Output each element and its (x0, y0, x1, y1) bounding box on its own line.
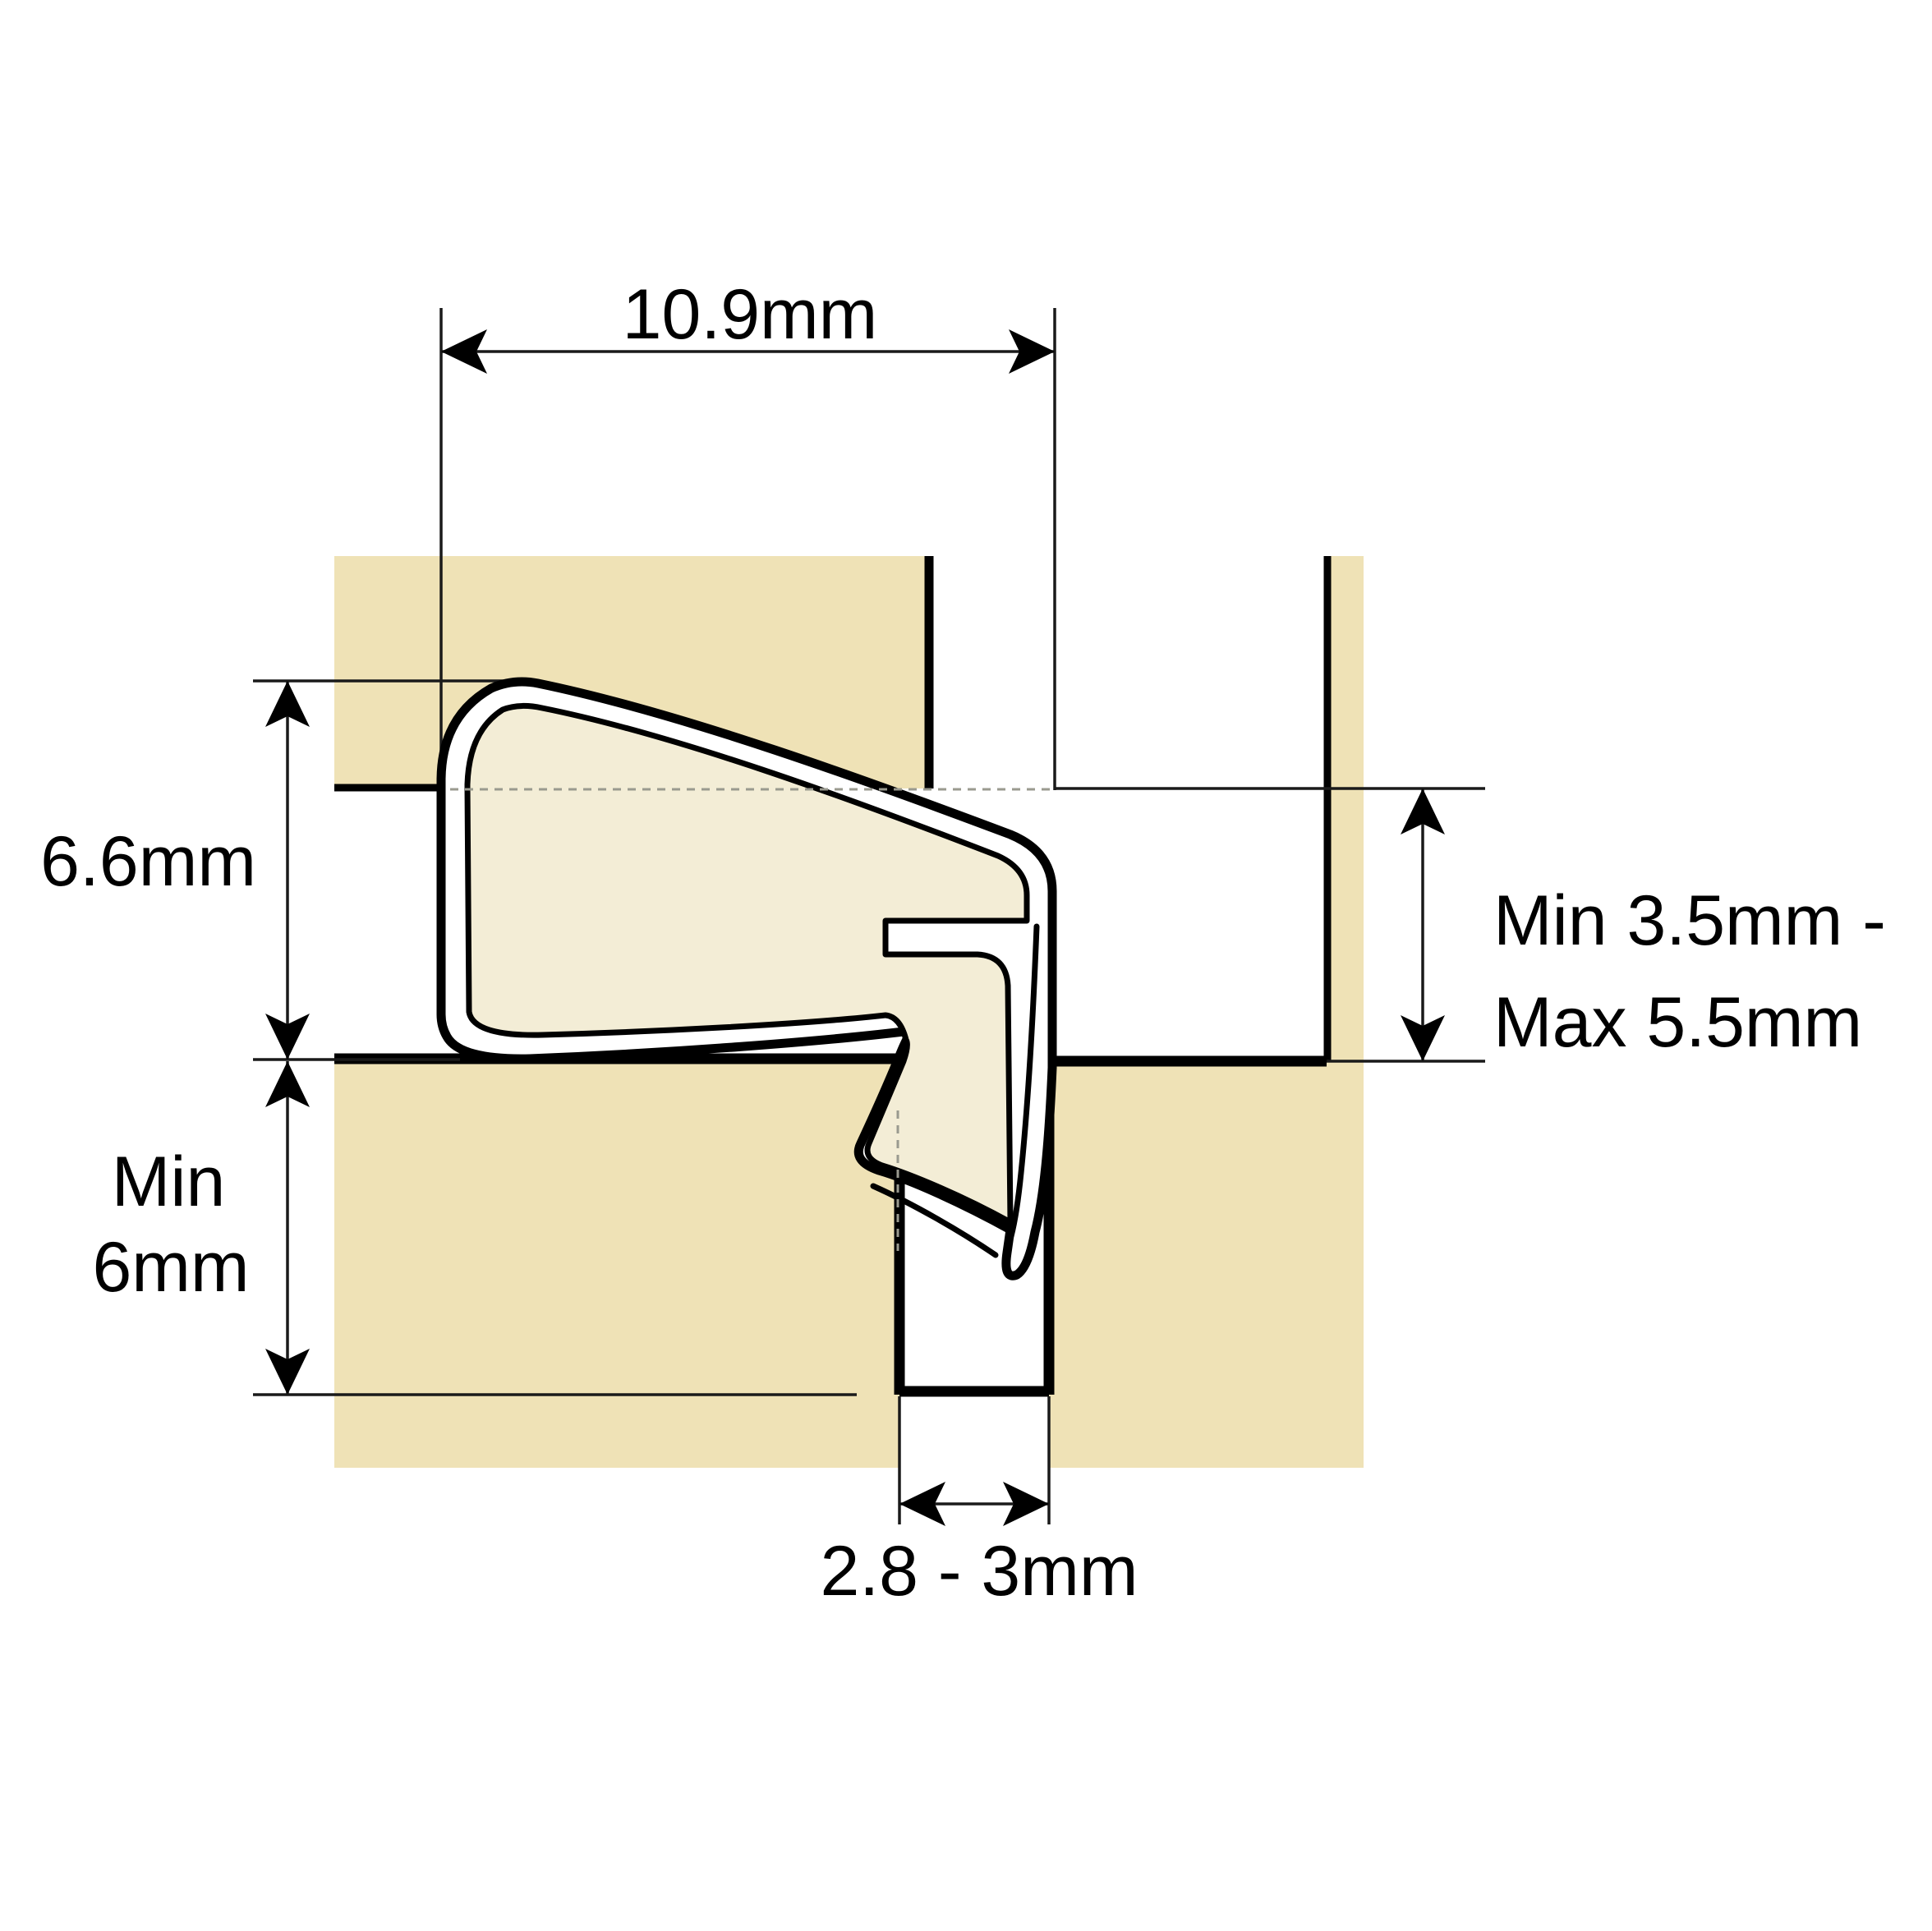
wood-frame-bottom-left-fill (334, 1055, 899, 1468)
seal-cross-section-diagram: 10.9mm 6.6mm Min 6mm Min 3.5mm - Max 5.5… (0, 0, 1932, 1931)
dimension-overall-width: 10.9mm (441, 275, 1055, 374)
wood-frame-bottom-right (1049, 1061, 1364, 1468)
dimension-gap-range-label-line1: Min 3.5mm - (1493, 881, 1886, 960)
dimension-overall-height-label: 6.6mm (40, 822, 256, 901)
wood-frame-bottom-left (334, 1055, 899, 1468)
dimension-groove-depth-label-line1: Min (112, 1143, 226, 1221)
dimension-groove-depth-label-line2: 6mm (92, 1228, 249, 1307)
dimension-groove-width-label: 2.8 - 3mm (820, 1532, 1138, 1611)
wood-sash-strip-top-right (1325, 556, 1364, 1062)
dimension-gap-range-label-line2: Max 5.5mm (1493, 983, 1862, 1062)
dimension-overall-width-label: 10.9mm (623, 275, 878, 354)
dimension-gap-range: Min 3.5mm - Max 5.5mm (1055, 788, 1886, 1062)
dimension-overall-height: 6.6mm (40, 681, 310, 1060)
wood-frame-bottom-right-fill (1049, 1061, 1364, 1468)
